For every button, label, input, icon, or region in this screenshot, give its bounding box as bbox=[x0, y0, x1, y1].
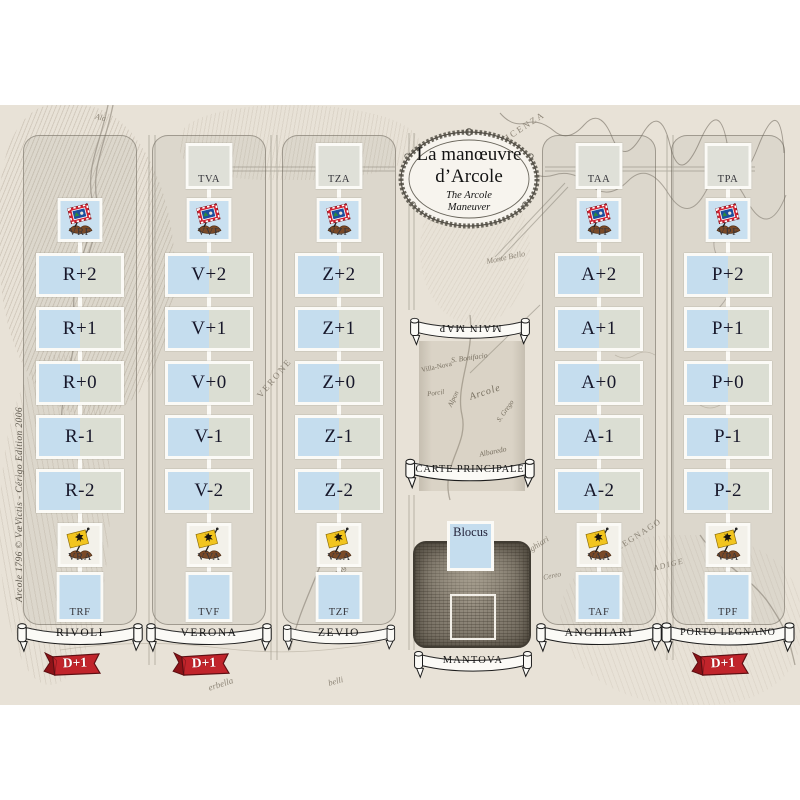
bottom-box-label: TZF bbox=[319, 607, 360, 618]
main-map-label: MAIN MAP bbox=[407, 322, 533, 333]
top-box-label: TVA bbox=[189, 174, 230, 185]
city-banner-verona: VERONA bbox=[143, 619, 275, 655]
bonus-ribbon-porto-legnano: D+1 bbox=[691, 651, 753, 678]
city-banner-rivoli: RIVOLI bbox=[14, 619, 146, 655]
bottom-box-tzf[interactable]: TZF bbox=[316, 572, 363, 622]
slot-z1p[interactable]: Z+1 bbox=[295, 307, 383, 351]
subtitle-line1: The Arcole bbox=[397, 190, 541, 201]
city-banner-label: ANGHIARI bbox=[533, 627, 665, 639]
flag-box-label: VVA bbox=[190, 552, 229, 563]
austrian-flag-box-vra[interactable]: VRA bbox=[58, 523, 103, 567]
slot-z1m[interactable]: Z-1 bbox=[295, 415, 383, 459]
city-banner-label: RIVOLI bbox=[14, 627, 146, 639]
austrian-flag-box-vpa[interactable]: VPA bbox=[706, 523, 751, 567]
flag-box-label: VPF bbox=[709, 227, 748, 238]
french-flag-box-vtf[interactable]: VTF bbox=[577, 198, 622, 242]
slot-r1m[interactable]: R-1 bbox=[36, 415, 124, 459]
slot-v1m[interactable]: V-1 bbox=[165, 415, 253, 459]
column-zevio: TZA VZF Z+2 Z+1 Z+0 Z-1 Z-2 VZA TZF ZEVI… bbox=[282, 105, 396, 705]
title-line2: d’Arcole bbox=[397, 166, 541, 188]
column-porto-legnano: TPA VPF P+2 P+1 P+0 P-1 P-2 VPA TPF PORT… bbox=[671, 105, 785, 705]
scroll-map-label: Villa-Nova bbox=[421, 360, 453, 374]
slot-z0[interactable]: Z+0 bbox=[295, 361, 383, 405]
french-flag-box-vpf[interactable]: VPF bbox=[706, 198, 751, 242]
top-box-taa[interactable]: TAA bbox=[576, 143, 623, 189]
main-map-banner: MAIN MAP bbox=[407, 313, 533, 349]
slot-p1m[interactable]: P-1 bbox=[684, 415, 772, 459]
bottom-box-tvf[interactable]: TVF bbox=[186, 572, 233, 622]
austrian-flag-box-vva[interactable]: VVA bbox=[187, 523, 232, 567]
city-banner-anghiari: ANGHIARI bbox=[533, 619, 665, 655]
blocus-box[interactable]: Blocus bbox=[447, 521, 494, 571]
slot-p0[interactable]: P+0 bbox=[684, 361, 772, 405]
bottom-box-label: TRF bbox=[60, 607, 101, 618]
bonus-ribbon-rivoli: D+1 bbox=[43, 651, 105, 678]
flag-box-label: VZF bbox=[320, 227, 359, 238]
city-banner-zevio: ZEVIO bbox=[280, 619, 398, 655]
slot-a1p[interactable]: A+1 bbox=[555, 307, 643, 351]
column-anghiari: TAA VTF A+2 A+1 A+0 A-1 A-2 VAA TAF ANGH… bbox=[542, 105, 656, 705]
slot-p2p[interactable]: P+2 bbox=[684, 253, 772, 297]
top-box-label: TAA bbox=[579, 174, 620, 185]
slot-a1m[interactable]: A-1 bbox=[555, 415, 643, 459]
bonus-ribbon-verona: D+1 bbox=[172, 651, 234, 678]
scroll-map-label: S. Grego bbox=[495, 399, 516, 424]
title-line1: La manœuvre bbox=[397, 144, 541, 166]
page: VICENZA Ala Monte Bello VERONE Valleggio… bbox=[0, 0, 800, 800]
scroll-map-label: Porcil bbox=[427, 388, 445, 398]
blocus-label: Blocus bbox=[450, 525, 491, 540]
slot-r2p[interactable]: R+2 bbox=[36, 253, 124, 297]
top-box-label: TPA bbox=[708, 174, 749, 185]
top-box-tva[interactable]: TVA bbox=[186, 143, 233, 189]
slot-r2m[interactable]: R-2 bbox=[36, 469, 124, 513]
bonus-label: D+1 bbox=[176, 654, 233, 672]
austrian-flag-box-vza[interactable]: VZA bbox=[317, 523, 362, 567]
game-board: VICENZA Ala Monte Bello VERONE Valleggio… bbox=[0, 105, 800, 705]
slot-r0[interactable]: R+0 bbox=[36, 361, 124, 405]
top-box-tza[interactable]: TZA bbox=[316, 143, 363, 189]
flag-box-label: VAA bbox=[580, 552, 619, 563]
slot-v2p[interactable]: V+2 bbox=[165, 253, 253, 297]
bonus-label: D+1 bbox=[695, 654, 752, 672]
column-verona: TVA VVF V+2 V+1 V+0 V-1 V-2 VVA TVF VERO… bbox=[152, 105, 266, 705]
flag-box-label: VRA bbox=[61, 552, 100, 563]
city-banner-porto-legnano: PORTO LEGNANO bbox=[652, 619, 800, 655]
city-banner-label: ZEVIO bbox=[280, 627, 398, 639]
bottom-box-trf[interactable]: TRF bbox=[57, 572, 104, 622]
flag-box-label: VVF bbox=[190, 227, 229, 238]
mantova-slot-box[interactable] bbox=[450, 594, 496, 640]
city-banner-mantova: MANTOVA bbox=[411, 646, 535, 682]
carte-principale-banner: CARTE PRINCIPALE bbox=[402, 455, 538, 491]
scroll-map-label: Arcole bbox=[468, 382, 502, 402]
carte-principale-label: CARTE PRINCIPALE bbox=[402, 464, 538, 475]
subtitle-line2: Maneuver bbox=[397, 202, 541, 213]
austrian-flag-box-vaa[interactable]: VAA bbox=[577, 523, 622, 567]
french-flag-box-vvf[interactable]: VVF bbox=[187, 198, 232, 242]
bottom-box-label: TVF bbox=[189, 607, 230, 618]
bottom-box-label: TPF bbox=[708, 607, 749, 618]
french-flag-box-vzf[interactable]: VZF bbox=[317, 198, 362, 242]
slot-v1p[interactable]: V+1 bbox=[165, 307, 253, 351]
bonus-label: D+1 bbox=[47, 654, 104, 672]
flag-box-label: VZA bbox=[320, 552, 359, 563]
slot-r1p[interactable]: R+1 bbox=[36, 307, 124, 351]
bottom-box-label: TAF bbox=[579, 607, 620, 618]
french-flag-box-vrf[interactable]: VRF bbox=[58, 198, 103, 242]
scroll-map-label: S. Bonifacio bbox=[451, 350, 489, 364]
flag-box-label: VTF bbox=[580, 227, 619, 238]
slot-a2p[interactable]: A+2 bbox=[555, 253, 643, 297]
top-box-tpa[interactable]: TPA bbox=[705, 143, 752, 189]
flag-box-label: VPA bbox=[709, 552, 748, 563]
slot-a0[interactable]: A+0 bbox=[555, 361, 643, 405]
title-cartouche: La manœuvre d’Arcole The Arcole Maneuver bbox=[397, 128, 541, 230]
column-rivoli: VRF R+2 R+1 R+0 R-1 R-2 VRA TRF RIVOLI D… bbox=[23, 105, 137, 705]
slot-a2m[interactable]: A-2 bbox=[555, 469, 643, 513]
city-banner-label: PORTO LEGNANO bbox=[652, 627, 800, 638]
bottom-box-tpf[interactable]: TPF bbox=[705, 572, 752, 622]
slot-z2p[interactable]: Z+2 bbox=[295, 253, 383, 297]
top-box-label: TZA bbox=[319, 174, 360, 185]
slot-z2m[interactable]: Z-2 bbox=[295, 469, 383, 513]
slot-v0[interactable]: V+0 bbox=[165, 361, 253, 405]
slot-p1p[interactable]: P+1 bbox=[684, 307, 772, 351]
scroll-map-label: Alpon bbox=[446, 390, 460, 409]
city-banner-label: VERONA bbox=[143, 627, 275, 639]
slot-p2m[interactable]: P-2 bbox=[684, 469, 772, 513]
slot-v2m[interactable]: V-2 bbox=[165, 469, 253, 513]
bottom-box-taf[interactable]: TAF bbox=[576, 572, 623, 622]
flag-box-label: VRF bbox=[61, 227, 100, 238]
city-banner-label: MANTOVA bbox=[411, 655, 535, 666]
